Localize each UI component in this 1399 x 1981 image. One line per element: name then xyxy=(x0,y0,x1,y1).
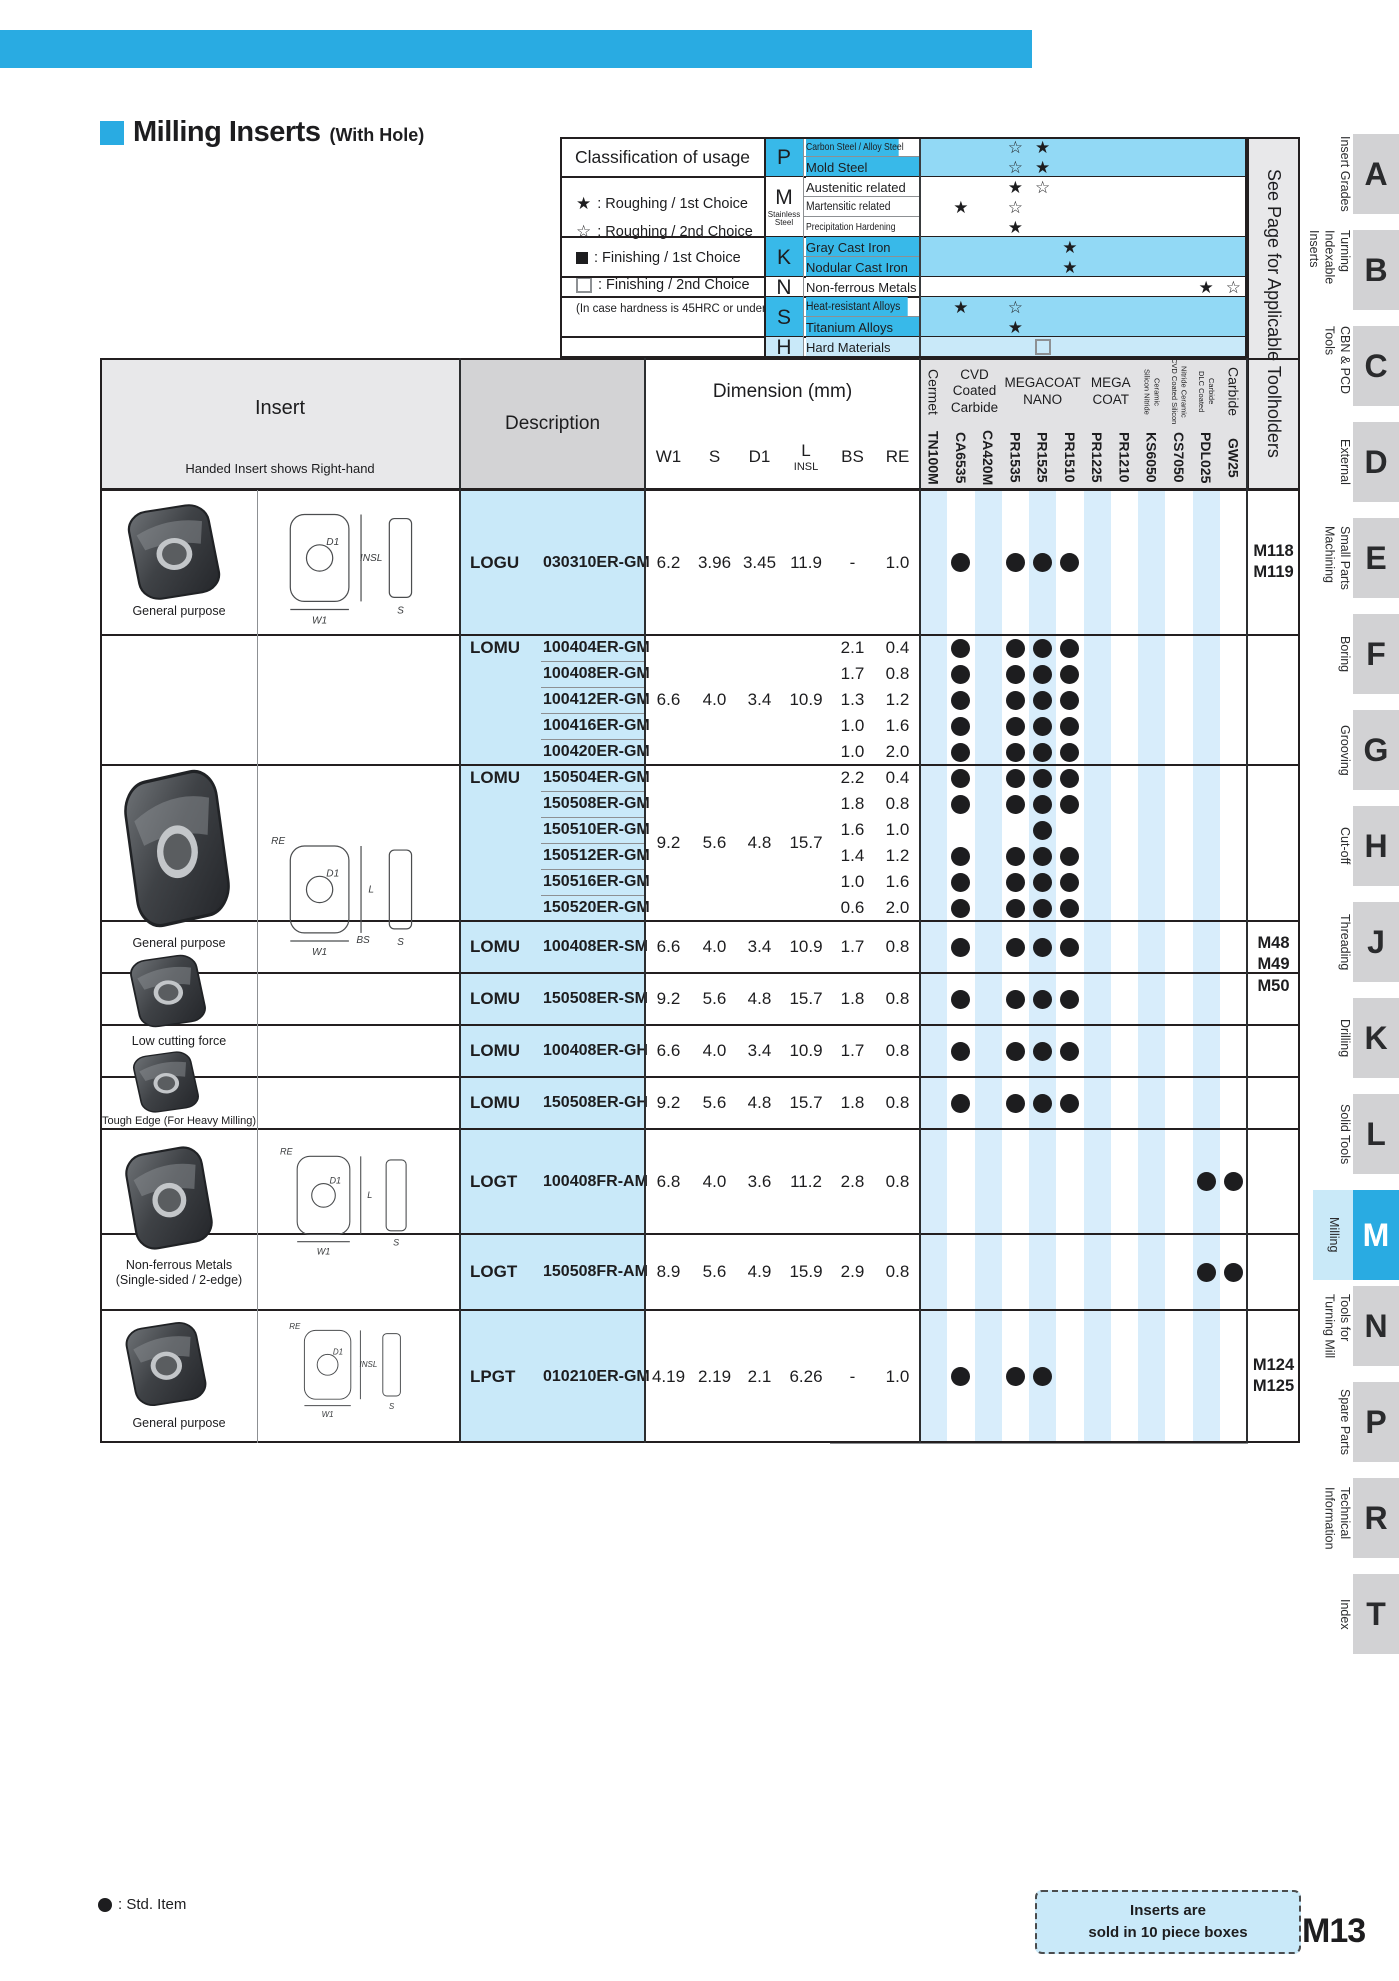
grade-availability-cell xyxy=(1111,817,1139,844)
grade-availability-cell xyxy=(1084,687,1112,714)
grade-availability-cell xyxy=(1056,1310,1084,1444)
grid-line xyxy=(541,869,645,870)
grade-availability-cell xyxy=(1193,1129,1221,1235)
sidebar-tab-M[interactable]: M xyxy=(1353,1190,1399,1280)
classification-grid-cell xyxy=(1111,157,1139,178)
classification-grid-cell: ★ xyxy=(947,197,975,218)
grade-availability-cell xyxy=(920,765,948,792)
grade-availability-cell xyxy=(1165,661,1193,688)
insert-caption: General purpose xyxy=(100,1414,258,1433)
sidebar-tab-label-holder: Cut-off xyxy=(1300,806,1352,886)
series-label: LOMU xyxy=(470,767,536,789)
legend-item: (In case hardness is 45HRC or under) xyxy=(576,303,770,315)
std-item-dot-icon xyxy=(1033,665,1052,684)
dim-value-re: 0.8 xyxy=(875,921,920,974)
classification-grid-cell xyxy=(1220,237,1248,258)
sidebar-tab-A[interactable]: A xyxy=(1353,134,1399,214)
grade-availability-cell xyxy=(975,895,1003,922)
grade-col-header-PR1225: PR1225 xyxy=(1084,425,1112,490)
dim-value-bs: 1.0 xyxy=(830,739,876,766)
grade-availability-cell xyxy=(975,791,1003,818)
grid-line xyxy=(560,137,562,358)
grade-availability-cell xyxy=(975,973,1003,1026)
sidebar-tab-label: Technical Information xyxy=(1321,1487,1352,1550)
grade-availability-cell xyxy=(1138,1234,1166,1311)
grade-availability-cell xyxy=(1111,791,1139,818)
dim-value-d1: 2.1 xyxy=(737,1310,783,1443)
grade-availability-cell xyxy=(1193,1234,1221,1311)
dim-value-re: 1.0 xyxy=(875,490,920,636)
grade-availability-cell xyxy=(1029,869,1057,896)
std-item-dot-icon xyxy=(1006,665,1025,684)
grade-availability-cell xyxy=(1029,635,1057,662)
grade-availability-cell xyxy=(1084,973,1112,1026)
dim-col-label: RE xyxy=(886,448,910,467)
open-star-icon: ☆ xyxy=(1008,159,1023,176)
series-label: LOMU xyxy=(470,988,536,1010)
sidebar-tab-label-holder: Spare Parts xyxy=(1300,1382,1352,1462)
grade-availability-cell xyxy=(1165,895,1193,922)
insert-code: 150508ER-GM xyxy=(543,791,648,817)
classification-grid-cell: ★ xyxy=(1002,177,1030,198)
sidebar-tab-L[interactable]: L xyxy=(1353,1094,1399,1174)
grade-availability-cell xyxy=(1220,765,1248,792)
material-letter: K xyxy=(777,247,791,268)
grade-group-header: MEGA COAT xyxy=(1084,358,1140,426)
dim-value-re: 1.0 xyxy=(875,1310,920,1444)
classification-grid-cell xyxy=(1220,297,1248,318)
std-item-dot-icon xyxy=(1006,769,1025,788)
classification-grid-cell xyxy=(1138,157,1166,178)
classification-grid-cell xyxy=(947,157,975,178)
dim-value-bs: 1.8 xyxy=(830,1077,876,1130)
classification-grid-cell xyxy=(1002,257,1030,278)
classification-grid-cell xyxy=(920,297,948,318)
grade-availability-cell xyxy=(1084,843,1112,870)
insert-code: 100408FR-AM xyxy=(543,1129,648,1234)
std-item-dot-icon xyxy=(1060,665,1079,684)
classification-grid-cell xyxy=(1138,337,1166,358)
grade-group-label: MEGACOAT NANO xyxy=(1004,375,1080,407)
classification-grid-cell xyxy=(1138,137,1166,158)
sidebar-tab-E[interactable]: E xyxy=(1353,518,1399,598)
dim-value-re: 1.6 xyxy=(875,713,920,740)
classification-grid-cell xyxy=(1138,257,1166,278)
dim-value-s: 4.0 xyxy=(692,635,738,765)
grade-availability-cell xyxy=(920,1129,948,1235)
classification-grid-cell xyxy=(1165,177,1193,198)
insert-photo xyxy=(122,953,214,1029)
sidebar-tab-label-holder: CBN & PCD Tools xyxy=(1300,326,1352,406)
grade-availability-cell xyxy=(1056,791,1084,818)
grade-availability-cell xyxy=(1056,490,1084,636)
classification-grid-cell xyxy=(1138,317,1166,338)
sidebar-tab-label: Index xyxy=(1336,1599,1352,1630)
sidebar-tab-label-holder: External xyxy=(1300,422,1352,502)
sidebar-tab-H[interactable]: H xyxy=(1353,806,1399,886)
classification-grid-cell xyxy=(975,277,1003,298)
insert-photo xyxy=(126,1050,206,1114)
grade-availability-cell xyxy=(1138,713,1166,740)
grade-availability-cell xyxy=(1165,635,1193,662)
sidebar-tab-label-holder: Drilling xyxy=(1300,998,1352,1078)
sidebar-tab-label-holder: Milling xyxy=(1313,1190,1353,1280)
std-item-dot-icon xyxy=(951,899,970,918)
grade-availability-cell xyxy=(1193,895,1221,922)
insert-photo xyxy=(116,1144,222,1252)
grid-line xyxy=(541,739,645,740)
grade-availability-cell xyxy=(1029,739,1057,766)
grade-availability-cell xyxy=(1056,661,1084,688)
grade-availability-cell xyxy=(1056,687,1084,714)
classification-grid-cell xyxy=(1165,257,1193,278)
grade-availability-cell xyxy=(1138,1025,1166,1078)
classification-grid-cell xyxy=(920,317,948,338)
grade-availability-cell xyxy=(975,687,1003,714)
dim-value-s: 4.0 xyxy=(692,1025,738,1077)
sidebar-tab-T[interactable]: T xyxy=(1353,1574,1399,1654)
grade-availability-cell xyxy=(1056,635,1084,662)
grade-availability-cell xyxy=(947,713,975,740)
grade-availability-cell xyxy=(1002,1025,1030,1078)
sidebar-tab-D[interactable]: D xyxy=(1353,422,1399,502)
sidebar-tab-N[interactable]: N xyxy=(1353,1286,1399,1366)
insert-drawing: REINSLD1W1S xyxy=(262,1316,454,1420)
open-square-icon xyxy=(1035,339,1051,355)
material-row-label: Carbon Steel / Alloy Steel xyxy=(806,137,899,157)
grade-availability-cell xyxy=(920,895,948,922)
std-item-dot-icon xyxy=(951,1042,970,1061)
grade-availability-cell xyxy=(1111,1077,1139,1130)
svg-text:D1: D1 xyxy=(326,537,339,548)
see-page-ref: M124M125 xyxy=(1247,1354,1300,1398)
grade-availability-cell xyxy=(1165,973,1193,1026)
material-class-H: H xyxy=(765,337,803,357)
catalog-page: Milling Inserts (With Hole) : Std. Item … xyxy=(0,0,1399,1981)
classification-grid-cell xyxy=(1193,257,1221,278)
grade-group-header: CVD Coated Silicon Nitride Ceramic xyxy=(1165,358,1193,426)
grade-availability-cell xyxy=(1084,635,1112,662)
sidebar-tab-B[interactable]: B xyxy=(1353,230,1399,310)
classification-grid-cell xyxy=(1056,197,1084,218)
insert-caption: General purpose xyxy=(100,934,258,953)
grade-availability-cell xyxy=(975,843,1003,870)
grade-availability-cell xyxy=(1111,490,1139,636)
grade-availability-cell xyxy=(1220,490,1248,636)
std-item-dot-icon xyxy=(951,717,970,736)
sidebar-tab-label: Boring xyxy=(1336,636,1352,672)
std-item-dot-icon xyxy=(1006,1367,1025,1386)
classification-grid-cell: ★ xyxy=(1029,157,1057,178)
grade-availability-cell xyxy=(1029,765,1057,792)
grade-availability-cell xyxy=(1138,765,1166,792)
sidebar-tab-F[interactable]: F xyxy=(1353,614,1399,694)
grade-availability-cell xyxy=(1029,1129,1057,1235)
dim-value-s: 4.0 xyxy=(692,921,738,973)
insert-code: 150516ER-GM xyxy=(543,869,648,895)
sidebar-tab-C[interactable]: C xyxy=(1353,326,1399,406)
grade-col-header-GW25: GW25 xyxy=(1220,425,1248,490)
classification-grid-cell xyxy=(1220,257,1248,278)
std-item-dot-icon xyxy=(951,1094,970,1113)
sidebar-tab-P[interactable]: P xyxy=(1353,1382,1399,1462)
std-item-dot-icon xyxy=(951,665,970,684)
material-row-label: Martensitic related xyxy=(806,197,908,217)
grade-availability-cell xyxy=(1193,1025,1221,1078)
classification-grid-cell xyxy=(1084,337,1112,358)
classification-grid-cell xyxy=(1084,237,1112,258)
insert-drawing-holder: RELD1BSW1S xyxy=(262,786,454,1001)
material-row-label: Heat-resistant Alloys xyxy=(806,297,908,317)
sidebar-tab-R[interactable]: R xyxy=(1353,1478,1399,1558)
grade-availability-cell xyxy=(1111,895,1139,922)
dim-value-re: 0.4 xyxy=(875,765,920,792)
material-class-M: MStainless Steel xyxy=(765,177,803,237)
grid-line xyxy=(764,137,766,358)
series-label: LOGT xyxy=(470,1261,536,1283)
grade-name: PR1210 xyxy=(1116,432,1132,483)
material-letter-sub: Stainless Steel xyxy=(768,211,800,227)
insert-code: 150504ER-GM xyxy=(543,765,648,791)
std-item-dot-icon xyxy=(1060,873,1079,892)
insert-header-note: Handed Insert shows Right-hand xyxy=(100,456,460,480)
classification-grid-cell xyxy=(1138,217,1166,238)
dim-value-l: 15.7 xyxy=(782,765,831,921)
legend-text: : Finishing / 2nd Choice xyxy=(598,277,750,293)
grade-availability-cell xyxy=(947,1234,975,1311)
grid-line xyxy=(541,843,645,844)
insert-drawing-holder: RELD1W1S xyxy=(262,1140,454,1258)
grade-availability-cell xyxy=(975,1234,1003,1311)
open-star-icon: ☆ xyxy=(1008,199,1023,216)
grade-group-label: CVD Coated Carbide xyxy=(951,367,998,416)
grade-availability-cell xyxy=(1002,713,1030,740)
grid-line xyxy=(919,358,921,1443)
grade-availability-cell xyxy=(947,869,975,896)
grade-name: TN100M xyxy=(926,431,942,485)
grade-availability-cell xyxy=(1084,921,1112,974)
classification-grid-cell xyxy=(1084,157,1112,178)
grade-col-header-KS6050: KS6050 xyxy=(1138,425,1166,490)
sidebar-tab-J[interactable]: J xyxy=(1353,902,1399,982)
svg-text:D1: D1 xyxy=(333,1347,343,1356)
dim-value-w1: 6.8 xyxy=(645,1129,693,1234)
grade-availability-cell xyxy=(1056,713,1084,740)
series-label: LOMU xyxy=(470,1092,536,1114)
see-page-header-text: See Page for Applicable Toolholders xyxy=(1263,169,1284,458)
insert-code: 100408ER-GM xyxy=(543,661,648,687)
classification-grid-cell xyxy=(1111,137,1139,158)
sidebar-tab-label: Grooving xyxy=(1336,725,1352,776)
dim-value-bs: 1.8 xyxy=(830,973,876,1026)
dim-col-label: W1 xyxy=(656,448,682,467)
dim-value-d1: 4.9 xyxy=(737,1234,783,1310)
std-item-dot-icon xyxy=(1060,990,1079,1009)
std-item-dot-icon xyxy=(1224,1263,1243,1282)
dim-value-re: 0.8 xyxy=(875,791,920,818)
std-item-dot-icon xyxy=(1033,899,1052,918)
dim-value-w1: 6.6 xyxy=(645,635,693,765)
classification-grid-cell xyxy=(1029,277,1057,298)
std-item-dot-icon xyxy=(951,553,970,572)
dim-value-bs: 1.7 xyxy=(830,1025,876,1078)
grade-availability-cell xyxy=(1084,739,1112,766)
grade-availability-cell xyxy=(1220,973,1248,1026)
grade-availability-cell xyxy=(975,1310,1003,1444)
svg-text:S: S xyxy=(389,1402,395,1411)
grade-availability-cell xyxy=(975,817,1003,844)
classification-grid-cell xyxy=(1029,257,1057,278)
grade-availability-cell xyxy=(1165,1025,1193,1078)
insert-caption: Low cutting force xyxy=(100,1032,258,1051)
classification-grid-cell xyxy=(1165,277,1193,298)
classification-grid-cell xyxy=(947,177,975,198)
insert-photo xyxy=(113,766,241,931)
grade-availability-cell xyxy=(1111,869,1139,896)
grid-line xyxy=(541,661,645,662)
svg-text:RE: RE xyxy=(289,1322,301,1331)
grade-availability-cell xyxy=(1165,817,1193,844)
grade-group-label: Cermet xyxy=(926,369,942,415)
svg-text:W1: W1 xyxy=(312,616,327,627)
legend-text: (In case hardness is 45HRC or under) xyxy=(576,303,770,315)
grade-availability-cell xyxy=(1084,1310,1112,1444)
classification-grid-cell xyxy=(975,297,1003,318)
grade-availability-cell xyxy=(975,869,1003,896)
see-page-value: M48 xyxy=(1257,933,1289,954)
sidebar-tab-label: Milling xyxy=(1325,1217,1341,1252)
see-page-body-cell xyxy=(1247,1129,1300,1234)
classification-grid-cell xyxy=(1165,217,1193,238)
classification-grid-cell xyxy=(947,277,975,298)
insert-photo-image xyxy=(113,766,241,931)
material-row-label: Precipitation Hardening xyxy=(806,217,899,237)
classification-grid-cell xyxy=(1193,197,1221,218)
grid-line xyxy=(541,895,645,896)
std-item-dot-icon xyxy=(1060,938,1079,957)
grade-availability-cell xyxy=(1138,635,1166,662)
filled-star-icon: ★ xyxy=(1008,179,1023,196)
classification-grid-cell xyxy=(1111,257,1139,278)
grade-availability-cell xyxy=(1138,661,1166,688)
sidebar-tab-label-holder: Grooving xyxy=(1300,710,1352,790)
insert-drawing: RELD1W1S xyxy=(262,1140,454,1258)
std-item-dot-icon xyxy=(1033,743,1052,762)
grade-availability-cell xyxy=(1220,921,1248,974)
insert-code: 100416ER-GM xyxy=(543,713,648,739)
grade-availability-cell xyxy=(1165,490,1193,636)
sidebar-tab-label: Spare Parts xyxy=(1336,1389,1352,1455)
dim-value-bs: 1.4 xyxy=(830,843,876,870)
std-item-dot-icon xyxy=(1006,743,1025,762)
classification-grid-cell xyxy=(975,317,1003,338)
grade-availability-cell xyxy=(1138,869,1166,896)
std-item-dot-icon xyxy=(1006,553,1025,572)
std-item-dot-icon xyxy=(951,691,970,710)
grade-availability-cell xyxy=(1111,713,1139,740)
grade-availability-cell xyxy=(1084,490,1112,636)
grade-availability-cell xyxy=(975,661,1003,688)
dim-value-re: 0.8 xyxy=(875,1025,920,1078)
svg-text:S: S xyxy=(397,606,404,617)
grade-availability-cell xyxy=(1193,869,1221,896)
grade-availability-cell xyxy=(1193,973,1221,1026)
std-item-dot-icon xyxy=(1006,1042,1025,1061)
grade-availability-cell xyxy=(1111,1025,1139,1078)
classification-grid-cell xyxy=(1029,197,1057,218)
top-accent-bar xyxy=(0,30,1032,68)
grade-availability-cell xyxy=(1220,687,1248,714)
insert-code: 100408ER-SM xyxy=(543,921,648,973)
see-page-body-cell xyxy=(1247,1077,1300,1129)
see-page-ref: M118M119 xyxy=(1247,540,1300,584)
filled-star-icon: ★ xyxy=(953,199,968,216)
sidebar-tab-G[interactable]: G xyxy=(1353,710,1399,790)
grid-line xyxy=(100,1441,1300,1443)
classification-grid-cell xyxy=(920,237,948,258)
std-item-dot-icon xyxy=(1033,769,1052,788)
svg-text:D1: D1 xyxy=(330,1176,342,1186)
sidebar-tab-label: Small Parts Machining xyxy=(1321,526,1352,590)
svg-text:S: S xyxy=(397,937,404,948)
grade-availability-cell xyxy=(947,687,975,714)
grade-group-header: Silicon Nitride Ceramic xyxy=(1138,358,1166,426)
grade-availability-cell xyxy=(1029,843,1057,870)
dim-value-w1: 6.6 xyxy=(645,921,693,973)
grade-availability-cell xyxy=(920,1077,948,1130)
legend-item: : Finishing / 2nd Choice xyxy=(576,277,750,293)
grade-availability-cell xyxy=(1138,791,1166,818)
std-item-dot-icon xyxy=(1060,691,1079,710)
classification-grid-cell: ★ xyxy=(1029,137,1057,158)
grade-availability-cell xyxy=(1111,973,1139,1026)
classification-grid-cell xyxy=(1220,177,1248,198)
classification-grid-cell xyxy=(1165,157,1193,178)
insert-photo-image xyxy=(122,953,214,1029)
grade-availability-cell xyxy=(920,635,948,662)
grade-availability-cell xyxy=(1165,1077,1193,1130)
classification-grid-cell xyxy=(1165,317,1193,338)
classification-grid-cell xyxy=(1002,237,1030,258)
sidebar-tab-label: External xyxy=(1336,439,1352,485)
classification-grid-cell xyxy=(1002,277,1030,298)
sidebar-tab-K[interactable]: K xyxy=(1353,998,1399,1078)
grade-availability-cell xyxy=(1165,713,1193,740)
std-item-dot-icon xyxy=(1033,717,1052,736)
dim-value-re: 0.8 xyxy=(875,1077,920,1130)
grade-availability-cell xyxy=(920,1310,948,1444)
see-page-body-cell xyxy=(1247,635,1300,765)
dim-value-d1: 3.4 xyxy=(737,635,783,765)
grade-availability-cell xyxy=(947,895,975,922)
classification-grid-cell xyxy=(975,197,1003,218)
insert-drawing: INSLD1W1S xyxy=(262,496,454,628)
classification-grid-cell xyxy=(947,137,975,158)
grade-availability-cell xyxy=(1220,713,1248,740)
classification-grid-cell xyxy=(1193,237,1221,258)
grade-availability-cell xyxy=(1138,1310,1166,1444)
svg-text:W1: W1 xyxy=(312,947,327,958)
std-item-dot-icon xyxy=(1060,1094,1079,1113)
dim-value-bs: 1.8 xyxy=(830,791,876,818)
dim-value-re: 2.0 xyxy=(875,739,920,766)
classification-grid-cell xyxy=(1056,277,1084,298)
grade-availability-cell xyxy=(1002,817,1030,844)
grade-availability-cell xyxy=(1193,1077,1221,1130)
series-label: LOMU xyxy=(470,1040,536,1062)
svg-text:D1: D1 xyxy=(326,868,339,879)
grade-availability-cell xyxy=(1111,1234,1139,1311)
